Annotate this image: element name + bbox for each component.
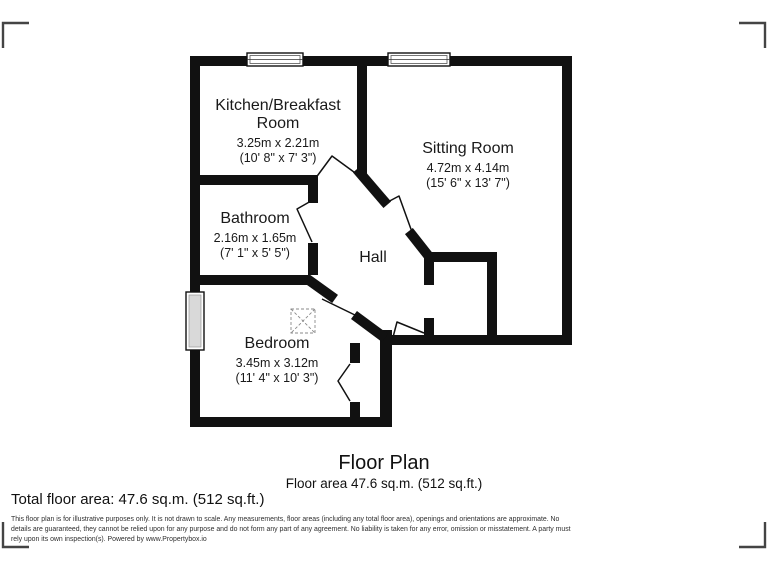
room-dim-metric-bedroom: 3.45m x 3.12m xyxy=(236,356,319,371)
window-kitchen xyxy=(247,53,303,66)
room-name-bedroom: Bedroom xyxy=(236,335,319,353)
room-label-kitchen: Kitchen/Breakfast Room 3.25m x 2.21m (10… xyxy=(215,97,340,165)
corner-bracket-top-right-icon xyxy=(739,23,765,48)
wall-diagonal-bathroom-hall xyxy=(310,281,331,296)
wall-diagonal-kitchen-hall xyxy=(360,173,384,201)
room-label-sitting-room: Sitting Room 4.72m x 4.14m (15' 6" x 13'… xyxy=(422,140,514,190)
corner-bracket-bottom-right-icon xyxy=(739,522,765,547)
window-bedroom xyxy=(186,292,204,350)
wall-bedroom-right xyxy=(380,330,392,427)
wall-bedroom-cupboard-upper xyxy=(350,343,360,363)
room-name-sitting-room: Sitting Room xyxy=(422,140,514,158)
wall-closet-top xyxy=(424,252,497,262)
wall-kitchen-sitting-divider xyxy=(357,66,367,175)
wall-diagonal-sitting-hall xyxy=(412,235,427,254)
room-label-hall: Hall xyxy=(359,249,387,267)
room-dim-imperial-bedroom: (11' 4" x 10' 3") xyxy=(236,371,319,386)
room-label-bedroom: Bedroom 3.45m x 3.12m (11' 4" x 10' 3") xyxy=(236,335,319,385)
door-bedroom-cupboard xyxy=(338,364,350,401)
wall-bedroom-cupboard-lower xyxy=(350,402,360,417)
room-dim-imperial-bathroom: (7' 1" x 5' 5") xyxy=(214,246,297,261)
wall-bathroom-right-upper xyxy=(308,185,318,203)
room-name-hall: Hall xyxy=(359,249,387,267)
wall-closet-right xyxy=(487,252,497,345)
room-dim-metric-kitchen: 3.25m x 2.21m xyxy=(215,136,340,151)
room-name-kitchen-line2: Room xyxy=(215,115,340,133)
disclaimer-text: This floor plan is for illustrative purp… xyxy=(11,515,573,545)
corner-bracket-top-left-icon xyxy=(3,23,29,48)
wall-outer-bottom-right xyxy=(392,335,572,345)
bedroom-fixture-symbol xyxy=(291,309,315,333)
room-label-bathroom: Bathroom 2.16m x 1.65m (7' 1" x 5' 5") xyxy=(214,210,297,260)
floor-area-subtitle: Floor area 47.6 sq.m. (512 sq.ft.) xyxy=(286,476,483,491)
room-dim-metric-sitting-room: 4.72m x 4.14m xyxy=(422,161,514,176)
wall-closet-left-upper xyxy=(424,262,434,285)
wall-bathroom-bottom xyxy=(190,275,308,285)
room-dim-imperial-sitting-room: (15' 6" x 13' 7") xyxy=(422,176,514,191)
door-bedroom xyxy=(322,299,359,317)
room-name-kitchen-line1: Kitchen/Breakfast xyxy=(215,97,340,115)
floor-plan-page: Kitchen/Breakfast Room 3.25m x 2.21m (10… xyxy=(0,0,768,576)
wall-outer-right xyxy=(562,56,572,345)
room-name-bathroom: Bathroom xyxy=(214,210,297,228)
wall-outer-left xyxy=(190,56,200,427)
door-bathroom xyxy=(297,201,312,242)
room-dim-metric-bathroom: 2.16m x 1.65m xyxy=(214,231,297,246)
window-sitting-room xyxy=(388,53,450,66)
wall-outer-bottom-bedroom xyxy=(190,417,392,427)
wall-closet-left-lower xyxy=(424,318,434,335)
wall-diagonal-bedroom-hall xyxy=(358,318,381,335)
page-title: Floor Plan xyxy=(338,452,429,474)
wall-kitchen-bottom xyxy=(200,175,318,185)
door-sitting-room xyxy=(384,196,412,232)
room-dim-imperial-kitchen: (10' 8" x 7' 3") xyxy=(215,151,340,166)
total-floor-area: Total floor area: 47.6 sq.m. (512 sq.ft.… xyxy=(11,491,264,508)
wall-bathroom-right-lower xyxy=(308,243,318,275)
